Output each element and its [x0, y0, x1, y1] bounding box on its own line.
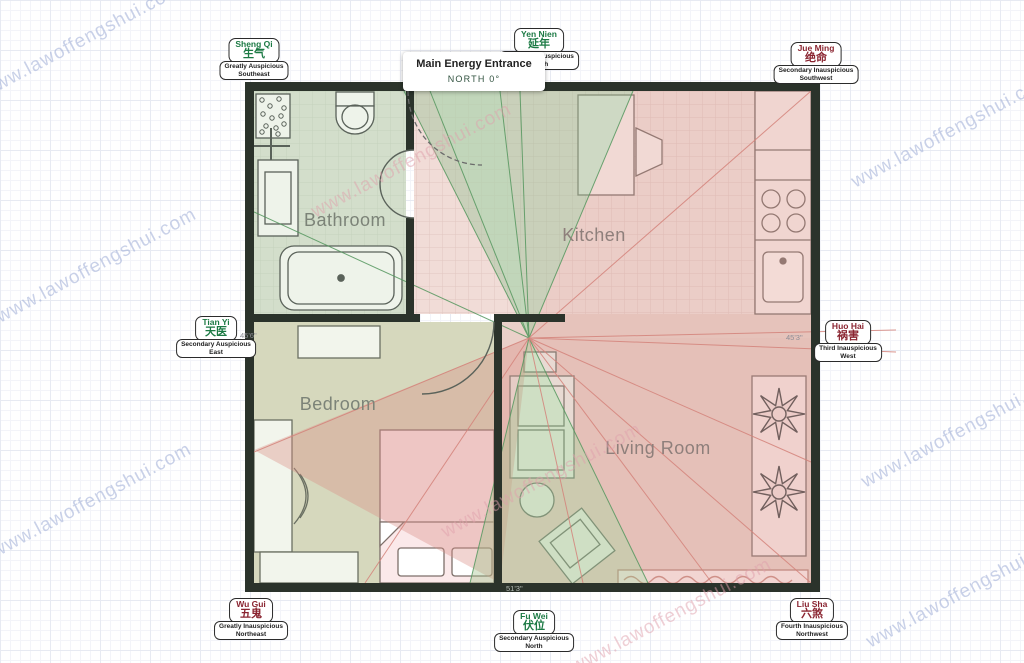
- compass-label-liu-sha[interactable]: Liu Sha 六煞 Fourth Inauspicious Northwest: [776, 598, 848, 640]
- label-direction: North: [499, 643, 569, 650]
- entrance-title: Main Energy Entrance: [407, 58, 541, 70]
- bedroom-shelf: [298, 326, 380, 358]
- label-classification: Greatly Auspicious: [225, 63, 284, 70]
- compass-label-huo-hai[interactable]: Huo Hai 祸害 Third Inauspicious West: [814, 320, 882, 362]
- label-box: Yen Nien 延年: [514, 28, 564, 53]
- label-box: Liu Sha 六煞: [790, 598, 835, 623]
- label-hanzi: 祸害: [832, 331, 864, 343]
- label-direction: West: [819, 353, 877, 360]
- label-subbox: Third Inauspicious West: [814, 343, 882, 362]
- label-subbox: Secondary Auspicious East: [176, 339, 256, 358]
- bathtub-icon: [280, 246, 402, 310]
- entrance-direction: NORTH 0°: [407, 74, 541, 84]
- label-classification: Secondary Auspicious: [499, 635, 569, 642]
- label-direction: Northeast: [219, 631, 283, 638]
- label-hanzi: 延年: [521, 39, 557, 51]
- label-subbox: Greatly Auspicious Southeast: [220, 61, 289, 80]
- room-label-bathroom: Bathroom: [304, 210, 386, 231]
- label-hanzi: 五鬼: [236, 609, 266, 621]
- main-energy-entrance-marker[interactable]: Main Energy Entrance NORTH 0°: [403, 52, 545, 91]
- label-hanzi: 天医: [202, 327, 229, 339]
- label-box: Fu Wei 伏位: [513, 610, 555, 635]
- compass-label-tian-yi[interactable]: Tian Yi 天医 Secondary Auspicious East: [176, 316, 256, 358]
- label-hanzi: 绝命: [798, 53, 835, 65]
- compass-label-fu-wei[interactable]: Fu Wei 伏位 Secondary Auspicious North: [494, 610, 574, 652]
- label-classification: Secondary Auspicious: [181, 341, 251, 348]
- room-label-living-room: Living Room: [605, 438, 711, 459]
- compass-label-wu-gui[interactable]: Wu Gui 五鬼 Greatly Inauspicious Northeast: [214, 598, 288, 640]
- label-direction: Northwest: [781, 631, 843, 638]
- label-box: Huo Hai 祸害: [825, 320, 871, 345]
- label-classification: Secondary Inauspicious: [779, 67, 854, 74]
- label-subbox: Greatly Inauspicious Northeast: [214, 621, 288, 640]
- feng-shui-floorplan-canvas: www.lawoffengshui.com www.lawoffengshui.…: [0, 0, 1024, 663]
- label-box: Tian Yi 天医: [195, 316, 236, 341]
- label-classification: Greatly Inauspicious: [219, 623, 283, 630]
- label-direction: Southwest: [779, 75, 854, 82]
- label-box: Wu Gui 五鬼: [229, 598, 273, 623]
- bedroom-dresser: [260, 552, 358, 583]
- compass-label-sheng-qi[interactable]: Sheng Qi 生气 Greatly Auspicious Southeast: [220, 38, 289, 80]
- room-label-kitchen: Kitchen: [562, 225, 626, 246]
- label-hanzi: 伏位: [520, 621, 548, 633]
- label-direction: Southeast: [225, 71, 284, 78]
- compass-label-jue-ming[interactable]: Jue Ming 绝命 Secondary Inauspicious South…: [774, 42, 859, 84]
- label-subbox: Fourth Inauspicious Northwest: [776, 621, 848, 640]
- label-classification: Third Inauspicious: [819, 345, 877, 352]
- room-label-bedroom: Bedroom: [300, 394, 377, 415]
- dimension-right: 45'3": [786, 333, 803, 342]
- label-subbox: Secondary Inauspicious Southwest: [774, 65, 859, 84]
- label-hanzi: 生气: [235, 49, 272, 61]
- toilet-icon: [336, 92, 374, 134]
- label-box: Sheng Qi 生气: [228, 38, 279, 63]
- label-subbox: Secondary Auspicious North: [494, 633, 574, 652]
- label-box: Jue Ming 绝命: [791, 42, 842, 67]
- dimension-bottom: 51'3": [506, 584, 523, 593]
- label-classification: Fourth Inauspicious: [781, 623, 843, 630]
- label-hanzi: 六煞: [797, 609, 828, 621]
- label-direction: East: [181, 349, 251, 356]
